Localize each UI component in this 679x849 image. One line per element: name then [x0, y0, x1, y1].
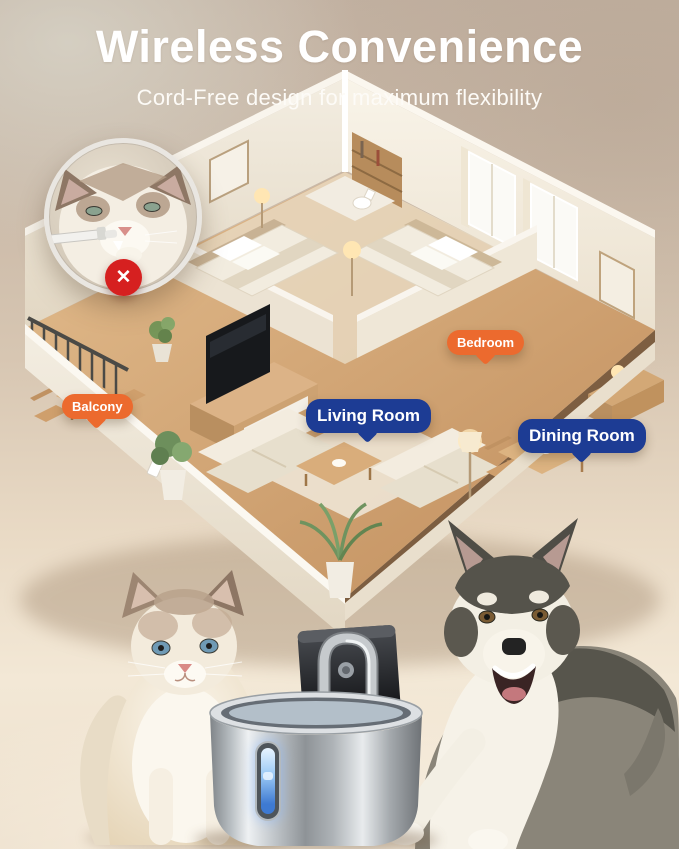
- page-title: Wireless Convenience: [0, 22, 679, 72]
- label-living-room-text: Living Room: [317, 406, 420, 425]
- marketing-banner: Wireless Convenience Cord-Free design fo…: [0, 0, 679, 849]
- label-living-room: Living Room: [306, 399, 431, 433]
- label-bedroom-text: Bedroom: [457, 335, 514, 350]
- heading-group: Wireless Convenience Cord-Free design fo…: [0, 22, 679, 111]
- label-balcony: Balcony: [62, 394, 133, 419]
- label-dining-room-text: Dining Room: [529, 426, 635, 445]
- label-bedroom: Bedroom: [447, 330, 524, 355]
- no-cord-badge: ✕: [105, 259, 142, 296]
- cross-icon: ✕: [116, 266, 132, 289]
- label-balcony-text: Balcony: [72, 399, 123, 414]
- page-subtitle: Cord-Free design for maximum flexibility: [0, 85, 679, 111]
- label-dining-room: Dining Room: [518, 419, 646, 453]
